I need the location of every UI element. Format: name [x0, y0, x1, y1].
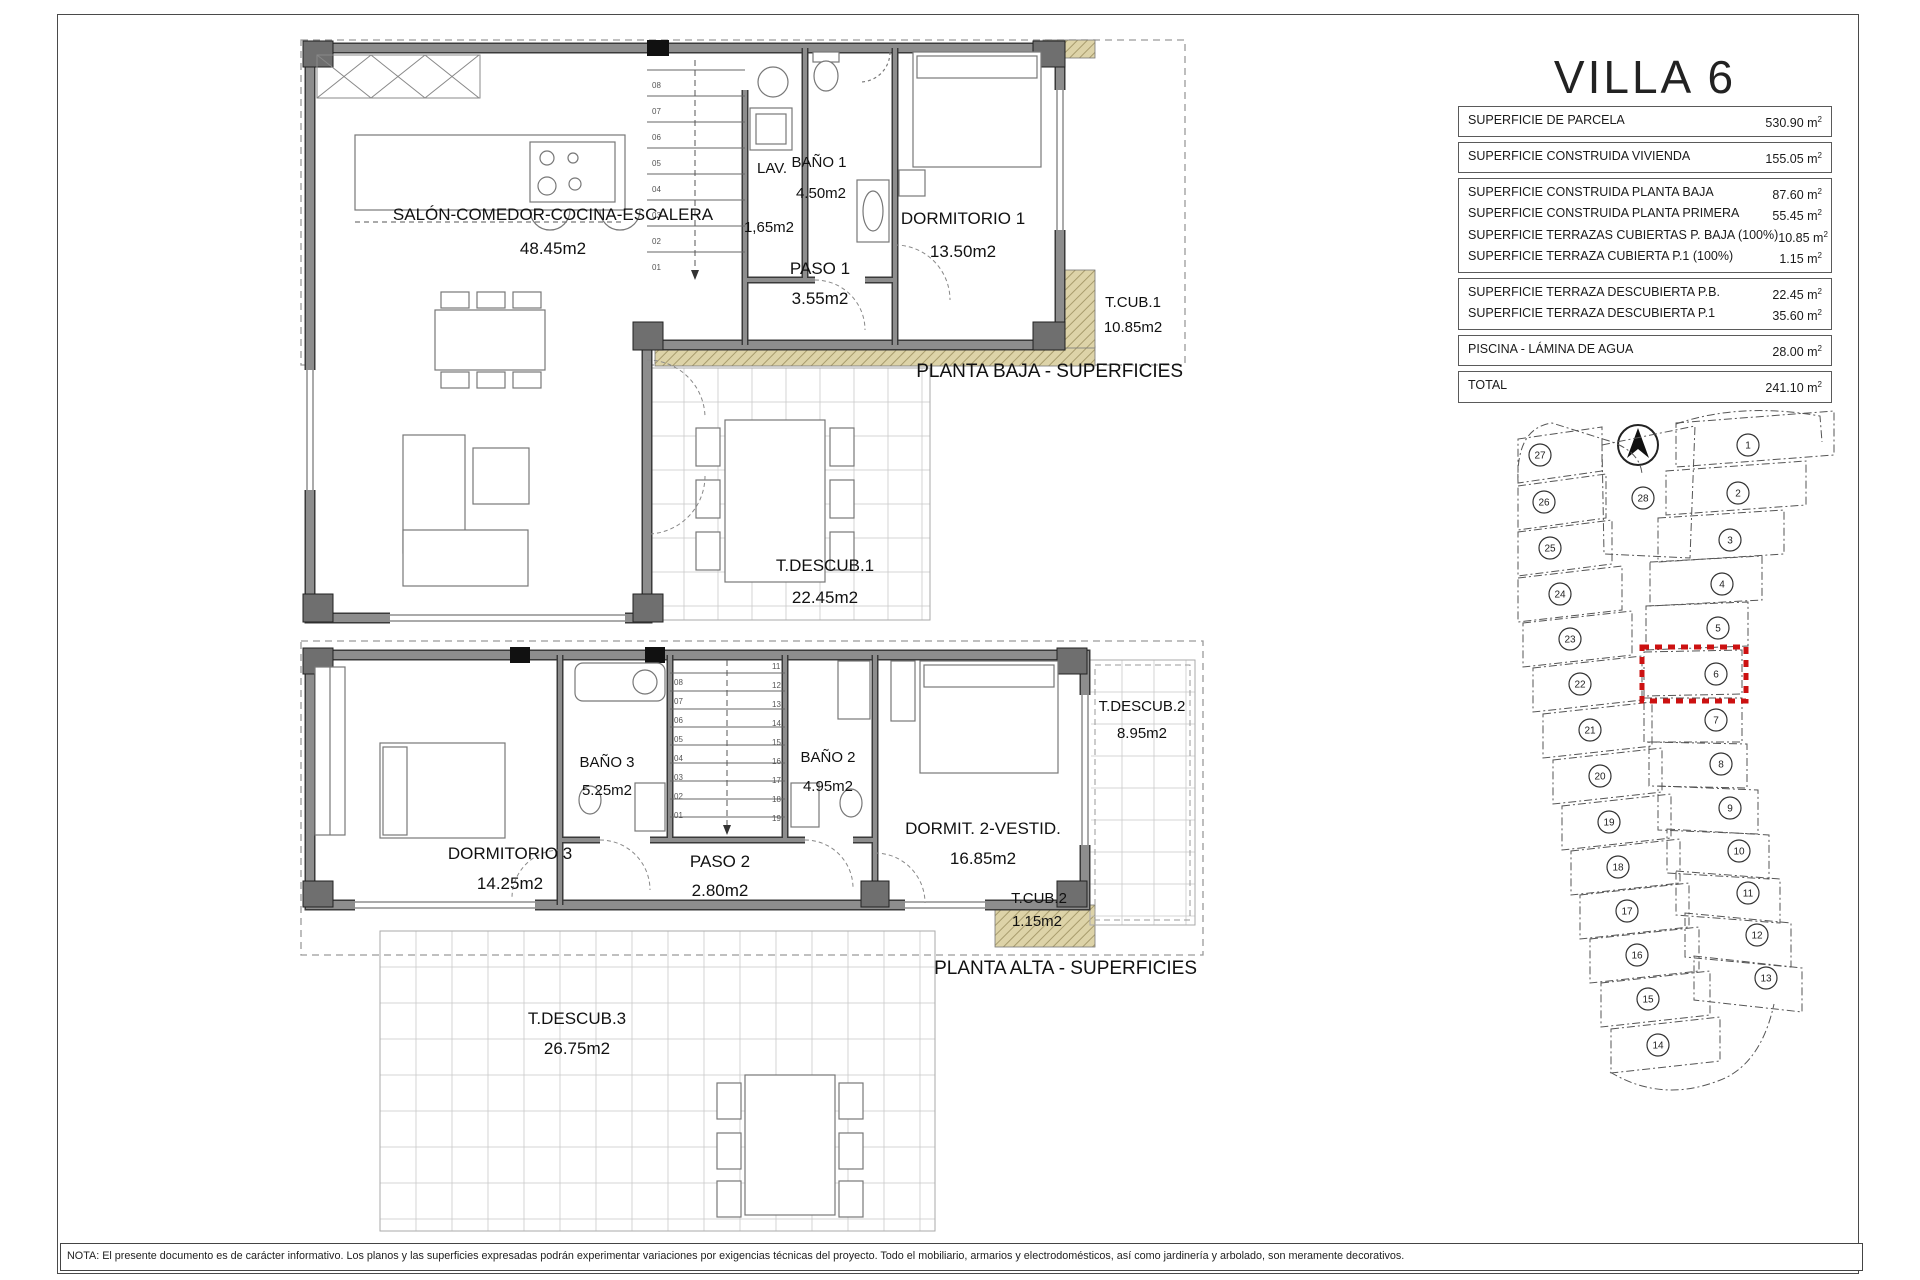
plot-number: 21 [1584, 726, 1596, 737]
plot-number: 3 [1727, 536, 1733, 547]
site-plot-cells [1518, 411, 1834, 1073]
surface-value: 1.15 m2 [1779, 248, 1822, 267]
surface-value: 35.60 m2 [1772, 305, 1822, 324]
plot-number: 14 [1652, 1041, 1664, 1052]
room-area-tdescub1: 22.45m2 [792, 588, 858, 607]
room-area-dormitorio2: 16.85m2 [950, 849, 1016, 868]
room-area-lav: 1,65m2 [744, 219, 794, 236]
plot-number: 12 [1751, 931, 1763, 942]
room-label-dormitorio1: DORMITORIO 1 [901, 209, 1025, 228]
plot-number: 28 [1637, 494, 1649, 505]
site-plan: 2726252423222120191817161514281234567891… [1490, 390, 1910, 1110]
surface-value: 530.90 m2 [1765, 112, 1822, 131]
stair-number: 13 [772, 700, 781, 709]
north-arrow-icon [1618, 425, 1658, 465]
stair-number: 01 [652, 263, 661, 272]
surface-label: SUPERFICIE CONSTRUIDA VIVIENDA [1468, 148, 1690, 167]
surface-row: SUPERFICIE DE PARCELA530.90 m2 [1468, 111, 1822, 132]
room-area-tcub2: 1.15m2 [1012, 913, 1062, 930]
surface-value: 155.05 m2 [1765, 148, 1822, 167]
stair-number: 01 [674, 811, 683, 820]
plot-number: 20 [1594, 772, 1606, 783]
plot-number: 13 [1760, 974, 1772, 985]
room-label-tcub1: T.CUB.1 [1105, 294, 1161, 311]
surface-value: 55.45 m2 [1772, 205, 1822, 224]
dining-table [435, 292, 545, 388]
room-area-dormitorio1: 13.50m2 [930, 242, 996, 261]
plot-number: 17 [1621, 907, 1633, 918]
surface-value: 28.00 m2 [1772, 341, 1822, 360]
room-label-bano1: BAÑO 1 [791, 154, 846, 171]
floor-plan-planta-alta: 0807060504030201 111213141516171819 DORM… [295, 635, 1215, 1245]
plot-number: 22 [1574, 680, 1586, 691]
room-area-bano3: 5.25m2 [582, 782, 632, 799]
surface-group: PISCINA - LÁMINA DE AGUA28.00 m2 [1458, 335, 1832, 366]
stair-number: 05 [652, 159, 661, 168]
stair-number: 04 [674, 754, 683, 763]
surface-value: 10.85 m2 [1778, 227, 1828, 246]
highlighted-plot-outline [1642, 647, 1746, 701]
surface-value: 87.60 m2 [1772, 184, 1822, 203]
surface-row: SUPERFICIE TERRAZA DESCUBIERTA P.B.22.45… [1468, 283, 1822, 304]
plot-number: 9 [1727, 804, 1733, 815]
surface-row: SUPERFICIE TERRAZA CUBIERTA P.1 (100%)1.… [1468, 247, 1822, 268]
surface-row: SUPERFICIE CONSTRUIDA PLANTA PRIMERA55.4… [1468, 204, 1822, 225]
caption-planta-alta: PLANTA ALTA - SUPERFICIES [934, 958, 1197, 979]
room-label-lav: LAV. [757, 160, 787, 177]
note-bar: NOTA: El presente documento es de caráct… [60, 1243, 1863, 1271]
plot-number: 7 [1713, 716, 1719, 727]
plot-number: 19 [1603, 818, 1615, 829]
room-label-tdescub1: T.DESCUB.1 [776, 556, 874, 575]
stair-number: 08 [652, 81, 661, 90]
plan-sheet: 0807060504030201 SALÓN-COMEDOR [0, 0, 1920, 1280]
chimney-marker-1 [510, 647, 530, 663]
surface-row: SUPERFICIE TERRAZA DESCUBIERTA P.135.60 … [1468, 304, 1822, 325]
note-text: NOTA: El presente documento es de caráct… [67, 1250, 1404, 1262]
stair-number: 11 [772, 662, 781, 671]
stair-number: 02 [674, 792, 683, 801]
room-label-paso1: PASO 1 [790, 259, 850, 278]
surface-row: SUPERFICIE TERRAZAS CUBIERTAS P. BAJA (1… [1468, 226, 1822, 247]
surface-label: SUPERFICIE TERRAZAS CUBIERTAS P. BAJA (1… [1468, 227, 1778, 246]
room-area-dormitorio3: 14.25m2 [477, 874, 543, 893]
room-label-bano2: BAÑO 2 [800, 749, 855, 766]
room-label-tdescub3: T.DESCUB.3 [528, 1009, 626, 1028]
surface-label: SUPERFICIE DE PARCELA [1468, 112, 1625, 131]
room-label-tdescub2: T.DESCUB.2 [1099, 698, 1186, 715]
stair-number: 08 [674, 678, 683, 687]
plot-number: 25 [1544, 544, 1556, 555]
plot-number: 18 [1612, 863, 1624, 874]
room-label-dormitorio3: DORMITORIO 3 [448, 844, 572, 863]
plot-number: 23 [1564, 635, 1576, 646]
room-area-bano1: 4.50m2 [796, 185, 846, 202]
stair-number: 16 [772, 757, 781, 766]
stair-number: 05 [674, 735, 683, 744]
room-area-paso2: 2.80m2 [692, 881, 749, 900]
room-area-tcub1: 10.85m2 [1104, 319, 1162, 336]
room-area-paso1: 3.55m2 [792, 289, 849, 308]
plot-number: 8 [1718, 760, 1724, 771]
surface-row: SUPERFICIE CONSTRUIDA VIVIENDA155.05 m2 [1468, 147, 1822, 168]
stair-number: 07 [674, 697, 683, 706]
chimney-marker-2 [645, 647, 665, 663]
surface-row: PISCINA - LÁMINA DE AGUA28.00 m2 [1468, 340, 1822, 361]
room-label-tcub2: T.CUB.2 [1011, 890, 1067, 907]
stair-number: 07 [652, 107, 661, 116]
surface-group: SUPERFICIE CONSTRUIDA VIVIENDA155.05 m2 [1458, 142, 1832, 173]
floor-plan-planta-baja: 0807060504030201 SALÓN-COMEDOR [295, 30, 1195, 640]
surface-value: 22.45 m2 [1772, 284, 1822, 303]
room-label-dormitorio2: DORMIT. 2-VESTID. [905, 819, 1061, 838]
stair-number: 17 [772, 776, 781, 785]
stair-number: 19 [772, 814, 781, 823]
plot-number: 10 [1733, 847, 1745, 858]
surface-label: SUPERFICIE CONSTRUIDA PLANTA BAJA [1468, 184, 1714, 203]
stair-number: 06 [674, 716, 683, 725]
chimney-marker [647, 40, 669, 56]
stair-number: 14 [772, 719, 781, 728]
room-label-paso2: PASO 2 [690, 852, 750, 871]
stair-number: 02 [652, 237, 661, 246]
surface-table: SUPERFICIE DE PARCELA530.90 m2SUPERFICIE… [1458, 106, 1832, 408]
plot-number: 11 [1743, 889, 1754, 900]
room-label-salon: SALÓN-COMEDOR-COCINA-ESCALERA [393, 205, 714, 224]
stair-number: 18 [772, 795, 781, 804]
plot-number: 5 [1715, 624, 1721, 635]
surface-row: SUPERFICIE CONSTRUIDA PLANTA BAJA87.60 m… [1468, 183, 1822, 204]
villa-title: VILLA 6 [1458, 50, 1832, 104]
surface-group: SUPERFICIE TERRAZA DESCUBIERTA P.B.22.45… [1458, 278, 1832, 330]
plot-number: 24 [1554, 590, 1566, 601]
surface-label: SUPERFICIE TERRAZA DESCUBIERTA P.1 [1468, 305, 1715, 324]
surface-group: SUPERFICIE DE PARCELA530.90 m2 [1458, 106, 1832, 137]
stair-number: 04 [652, 185, 661, 194]
stair-number: 12 [772, 681, 781, 690]
surface-label: SUPERFICIE TERRAZA CUBIERTA P.1 (100%) [1468, 248, 1733, 267]
plot-number: 16 [1631, 951, 1643, 962]
surface-group: SUPERFICIE CONSTRUIDA PLANTA BAJA87.60 m… [1458, 178, 1832, 273]
stair-number: 06 [652, 133, 661, 142]
plot-number-highlighted: 6 [1713, 670, 1719, 681]
caption-planta-baja: PLANTA BAJA - SUPERFICIES [916, 361, 1183, 382]
surface-label: SUPERFICIE CONSTRUIDA PLANTA PRIMERA [1468, 205, 1739, 224]
plot-number: 1 [1745, 441, 1751, 452]
plot-number: 27 [1534, 451, 1546, 462]
outdoor-dining-set-alta [717, 1075, 863, 1217]
room-area-salon: 48.45m2 [520, 239, 586, 258]
room-area-tdescub2: 8.95m2 [1117, 725, 1167, 742]
room-label-bano3: BAÑO 3 [579, 754, 634, 771]
surface-label: PISCINA - LÁMINA DE AGUA [1468, 341, 1633, 360]
room-area-tdescub3: 26.75m2 [544, 1039, 610, 1058]
stair-number: 15 [772, 738, 781, 747]
plot-number: 2 [1735, 489, 1741, 500]
surface-label: SUPERFICIE TERRAZA DESCUBIERTA P.B. [1468, 284, 1720, 303]
stair-number: 03 [674, 773, 683, 782]
plot-number: 15 [1642, 995, 1654, 1006]
room-area-bano2: 4.95m2 [803, 778, 853, 795]
plot-number: 26 [1538, 498, 1550, 509]
plot-number: 4 [1719, 580, 1725, 591]
site-plot-numbers: 2726252423222120191817161514281234567891… [1529, 434, 1777, 1056]
